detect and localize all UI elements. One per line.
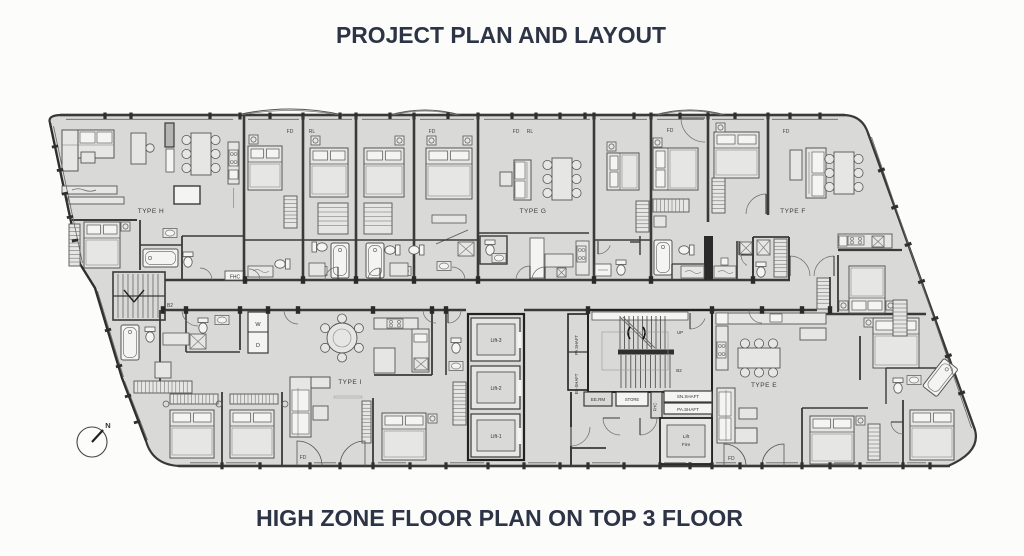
svg-text:FD: FD: [667, 128, 674, 134]
svg-text:Fire: Fire: [682, 442, 691, 448]
svg-text:RL: RL: [309, 129, 316, 135]
svg-text:D: D: [256, 343, 260, 349]
svg-text:PROJECT PLAN AND LAYOUT: PROJECT PLAN AND LAYOUT: [336, 22, 666, 48]
svg-text:Lift-3: Lift-3: [490, 338, 501, 344]
svg-text:Lift: Lift: [683, 434, 690, 440]
svg-text:FD: FD: [783, 129, 790, 135]
svg-text:FD: FD: [287, 129, 294, 135]
svg-text:FD: FD: [728, 456, 735, 462]
svg-text:SN.SHAFT: SN.SHAFT: [677, 394, 700, 399]
svg-text:PA.SHAFT: PA.SHAFT: [677, 407, 699, 412]
svg-text:STORE: STORE: [625, 397, 640, 402]
svg-text:W: W: [255, 322, 261, 328]
svg-text:B2: B2: [167, 303, 173, 309]
svg-text:FD: FD: [513, 129, 520, 135]
svg-text:EE.RM: EE.RM: [591, 397, 606, 402]
svg-text:TYPE H: TYPE H: [138, 208, 164, 215]
svg-text:RL: RL: [527, 129, 534, 135]
svg-text:Lift-1: Lift-1: [490, 434, 501, 440]
svg-text:FHC: FHC: [653, 403, 658, 412]
svg-text:FD: FD: [300, 455, 307, 461]
svg-text:Lift-2: Lift-2: [490, 386, 501, 392]
svg-text:N: N: [105, 421, 110, 430]
svg-text:TYPE F: TYPE F: [780, 208, 806, 215]
svg-text:TYPE E: TYPE E: [751, 382, 777, 389]
svg-text:B2: B2: [676, 368, 682, 373]
svg-text:FHC: FHC: [230, 275, 241, 281]
svg-text:FD: FD: [429, 129, 436, 135]
svg-text:PA SHAFT: PA SHAFT: [574, 335, 579, 355]
svg-text:EE-SHAFT: EE-SHAFT: [574, 373, 579, 394]
svg-text:HIGH ZONE FLOOR PLAN ON TOP 3: HIGH ZONE FLOOR PLAN ON TOP 3 FLOOR: [256, 505, 743, 531]
svg-text:UP: UP: [677, 330, 683, 335]
svg-text:TYPE I: TYPE I: [338, 379, 362, 386]
svg-text:TYPE G: TYPE G: [520, 208, 547, 215]
